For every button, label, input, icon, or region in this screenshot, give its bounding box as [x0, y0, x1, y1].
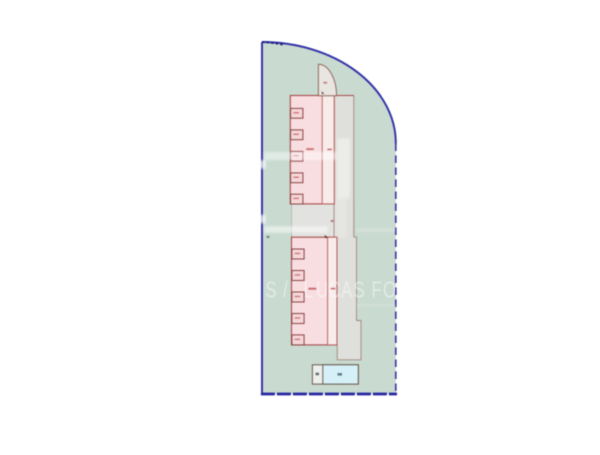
svg-text:S/LUCASFOX: S/LUCASFOX — [265, 277, 408, 303]
